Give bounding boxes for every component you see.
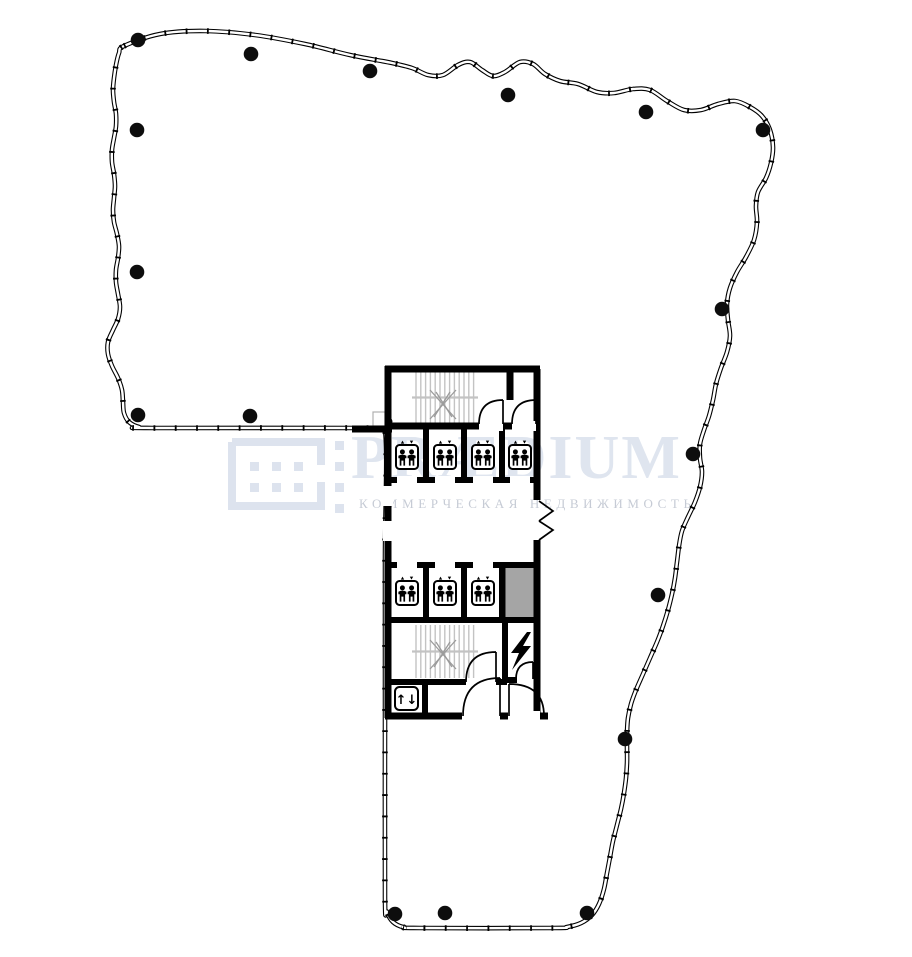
- column-dot: [756, 123, 771, 138]
- elevator-icon: [509, 441, 531, 469]
- column-dot: [243, 409, 258, 424]
- column-dot: [363, 64, 378, 79]
- elevator-icon: [396, 577, 418, 605]
- double-door-leaves: [539, 501, 553, 540]
- stair-break-mark: [434, 392, 450, 417]
- column-dot: [651, 588, 666, 603]
- stairwell-upper: [412, 371, 478, 424]
- column-dot: [639, 105, 654, 120]
- door-arc: [516, 662, 533, 679]
- lightning-icon: [511, 632, 531, 670]
- shaft-box: [373, 412, 385, 426]
- door-arc: [463, 678, 500, 716]
- column-dot: [130, 123, 145, 138]
- service-elevator-icon: ↑↓: [395, 687, 418, 710]
- stair-break-mark: [434, 642, 450, 667]
- column-dot: [130, 265, 145, 280]
- column-dot: [438, 906, 453, 921]
- column-dot: [686, 447, 701, 462]
- elevator-icon: [434, 577, 456, 605]
- utility-shaft-room: [505, 567, 536, 618]
- door-arc: [479, 400, 503, 424]
- column-dot: [131, 33, 146, 48]
- door-arc: [466, 652, 496, 682]
- column-dot: [244, 47, 259, 62]
- elevator-icon: [472, 577, 494, 605]
- elevator-icon: [396, 441, 418, 469]
- svg-text:↑↓: ↑↓: [396, 693, 418, 708]
- floor-plan-canvas: PRÆDIUM КОММЕРЧЕСКАЯ НЕДВИЖИМОСТЬ: [0, 0, 912, 957]
- column-dot: [501, 88, 516, 103]
- door-arc: [512, 400, 536, 424]
- column-dot: [131, 408, 146, 423]
- column-dot: [388, 907, 403, 922]
- elevator-icon: [434, 441, 456, 469]
- elevator-icon: [472, 441, 494, 469]
- column-dot: [580, 906, 595, 921]
- floor-plan: ↑↓: [0, 0, 912, 957]
- column-dot: [618, 732, 633, 747]
- column-dot: [715, 302, 730, 317]
